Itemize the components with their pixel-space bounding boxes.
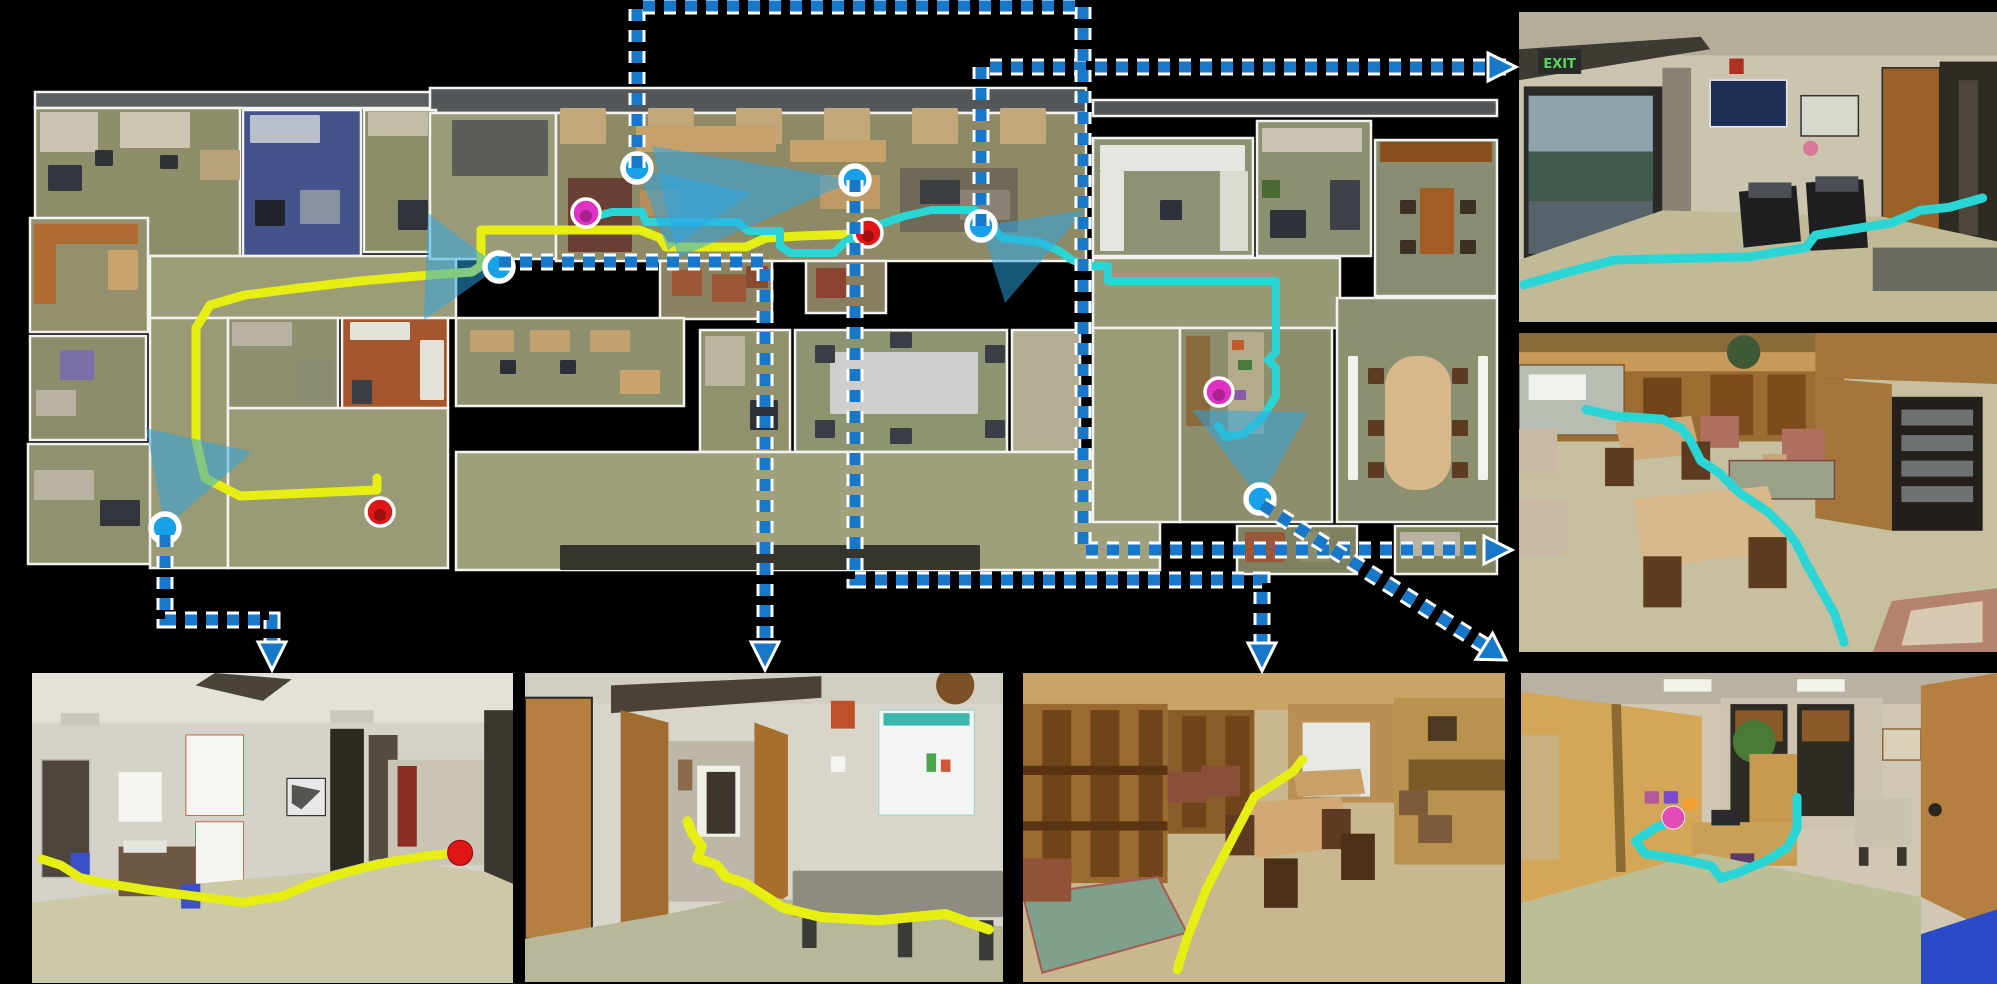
furniture	[368, 112, 428, 136]
photo-shape	[1901, 486, 1973, 502]
magenta-ball-goal-1-core	[580, 210, 592, 222]
furniture	[398, 200, 428, 230]
furniture	[255, 200, 285, 226]
photo-shape	[1519, 429, 1557, 474]
photo-office-reception	[1521, 673, 1997, 984]
photo-shape	[1521, 735, 1559, 859]
photo-shape	[1168, 772, 1207, 803]
photo-shape	[1645, 791, 1659, 803]
photo-shape	[119, 772, 162, 822]
photo-shape	[1399, 790, 1428, 815]
furniture	[1420, 188, 1454, 254]
photo-shape	[123, 840, 166, 852]
furniture	[672, 270, 702, 296]
room-open-floor-right	[1093, 328, 1180, 522]
furniture	[300, 190, 340, 224]
photo-shape	[1815, 176, 1858, 192]
photo-shape	[1341, 834, 1375, 880]
photo-shape	[621, 710, 669, 945]
photo-shape	[1815, 378, 1891, 531]
photo-shape	[1664, 791, 1678, 803]
photo-shape	[1139, 710, 1163, 877]
furniture	[1400, 200, 1416, 214]
photo-shape	[802, 917, 816, 948]
photo-shape	[1854, 797, 1911, 847]
photo-shape	[941, 760, 951, 772]
furniture	[920, 180, 960, 204]
furniture	[985, 345, 1005, 363]
photo-shape	[707, 772, 736, 834]
furniture	[500, 360, 516, 374]
room-corridor-right	[1093, 258, 1340, 328]
photo-shape	[1815, 333, 1997, 384]
furniture	[296, 360, 332, 400]
furniture	[560, 360, 576, 374]
red-ball-goal-2-core	[862, 230, 874, 242]
furniture	[350, 322, 410, 340]
photo-shape	[1023, 858, 1071, 901]
photo-shape	[678, 760, 692, 791]
photo-library-tables	[1023, 673, 1505, 982]
furniture	[95, 150, 113, 166]
photo-shape	[1264, 858, 1298, 907]
furniture	[48, 165, 82, 191]
photo-shape	[1711, 810, 1740, 826]
photo-shape	[1897, 847, 1907, 866]
furniture	[34, 470, 94, 500]
furniture	[200, 150, 240, 180]
furniture	[250, 115, 320, 143]
photo-shape	[1201, 766, 1240, 797]
furniture	[60, 350, 94, 380]
photo-entrance-lobby: EXIT	[1519, 12, 1997, 322]
red-ball-goal-1-core	[374, 509, 386, 521]
exit-sign-label: EXIT	[1543, 57, 1576, 72]
furniture	[1460, 240, 1476, 254]
furniture	[824, 108, 870, 144]
photo-shape	[330, 710, 373, 722]
photo-shape	[898, 920, 912, 957]
furniture	[560, 108, 606, 144]
photo-ball-icon	[1928, 803, 1941, 816]
furniture	[232, 322, 292, 346]
photo-shape	[1748, 183, 1791, 199]
photo-ball-icon	[1662, 806, 1685, 829]
room-wall-band-left	[35, 92, 435, 108]
furniture	[890, 332, 912, 348]
furniture	[120, 112, 190, 148]
furniture	[1330, 180, 1360, 230]
photo-shape	[186, 735, 244, 816]
furniture	[1000, 108, 1046, 144]
photo-shape	[1529, 374, 1586, 400]
furniture	[36, 390, 76, 416]
furniture	[985, 420, 1005, 438]
furniture	[790, 140, 886, 162]
photo-shape	[831, 701, 855, 729]
photo-shape	[1023, 766, 1168, 775]
photo-shape	[1801, 96, 1858, 136]
photo-shape	[1643, 556, 1681, 607]
photo-shape	[1748, 537, 1786, 588]
photo-shape	[1901, 461, 1973, 477]
furniture	[34, 244, 56, 304]
photo-shape	[1729, 59, 1743, 75]
photo-shape	[1859, 847, 1869, 866]
furniture	[1452, 368, 1468, 384]
photo-ball-icon	[1803, 141, 1818, 156]
photo-shape	[1428, 716, 1457, 741]
photo-shape	[927, 753, 937, 772]
furniture	[108, 250, 138, 290]
furniture	[1478, 356, 1488, 480]
furniture	[1385, 356, 1451, 490]
furniture	[705, 336, 745, 386]
photo-shape	[1802, 710, 1850, 741]
furniture	[1220, 171, 1248, 251]
photo-shape	[1664, 679, 1712, 691]
furniture	[1348, 356, 1358, 480]
furniture	[1368, 462, 1384, 478]
furniture	[890, 428, 912, 444]
photo-hallway-posters	[32, 673, 513, 983]
photo-shape	[398, 766, 417, 847]
furniture	[815, 420, 835, 438]
furniture	[1368, 420, 1384, 436]
photo-shape	[1529, 152, 1653, 202]
furniture	[1270, 210, 1306, 238]
figure-canvas: EXIT	[0, 0, 1997, 984]
furniture	[1234, 390, 1246, 400]
photo-shape	[330, 729, 364, 878]
photo-shape	[1090, 710, 1119, 877]
photo-shape	[61, 713, 99, 725]
photo-ball-icon	[1727, 335, 1760, 368]
furniture	[590, 330, 630, 352]
furniture	[816, 268, 846, 298]
furniture	[815, 345, 835, 363]
photo-shape	[1921, 673, 1997, 934]
furniture	[712, 274, 746, 302]
furniture	[1232, 340, 1244, 350]
photo-shape	[1768, 374, 1806, 435]
photo-hallway-doors-bench	[525, 666, 1003, 982]
photo-shape	[1605, 448, 1634, 486]
furniture	[1452, 462, 1468, 478]
photo-shape	[1710, 80, 1786, 127]
photo-shape	[1959, 80, 1978, 235]
navigation-figure: EXIT	[0, 0, 1997, 984]
photo-shape	[1901, 435, 1973, 451]
furniture	[34, 224, 138, 244]
photo-shape	[1797, 679, 1845, 691]
furniture	[1160, 200, 1182, 220]
photo-shape	[884, 713, 970, 725]
photo-shape	[1901, 410, 1973, 426]
furniture	[1262, 180, 1280, 198]
photo-library-reading-room	[1519, 333, 1997, 652]
photo-shape	[1873, 248, 1997, 291]
photo-shape	[525, 698, 592, 939]
furniture	[40, 112, 98, 152]
photo-ball-icon	[448, 840, 473, 865]
furniture	[1238, 360, 1252, 370]
furniture	[1368, 368, 1384, 384]
furniture	[100, 500, 140, 526]
photo-shape	[1023, 821, 1168, 830]
furniture	[452, 120, 548, 176]
furniture	[352, 380, 372, 404]
photo-shape	[1293, 769, 1365, 797]
magenta-ball-goal-2-core	[1213, 389, 1225, 401]
furniture	[912, 108, 958, 144]
photo-shape	[1683, 797, 1697, 809]
photo-shape	[831, 756, 845, 771]
furniture	[620, 370, 660, 394]
photo-shape	[196, 822, 244, 890]
furniture	[1380, 142, 1492, 162]
furniture	[1100, 145, 1245, 171]
furniture	[1400, 240, 1416, 254]
photo-shape	[1409, 760, 1505, 791]
photo-shape	[1042, 710, 1071, 877]
furniture	[530, 330, 570, 352]
photo-shape	[1883, 729, 1921, 760]
furniture	[1460, 200, 1476, 214]
furniture	[420, 340, 444, 400]
room-wall-band-right	[1093, 100, 1497, 116]
photo-shape	[879, 710, 975, 815]
photo-shape	[1418, 815, 1452, 843]
furniture	[1262, 128, 1362, 152]
room-marble-open	[1012, 330, 1080, 452]
furniture	[830, 352, 978, 414]
furniture	[470, 330, 514, 352]
furniture	[1452, 420, 1468, 436]
furniture	[160, 155, 178, 169]
photo-shape	[793, 871, 1003, 917]
photo-shape	[1519, 499, 1567, 556]
furniture	[1100, 171, 1124, 251]
